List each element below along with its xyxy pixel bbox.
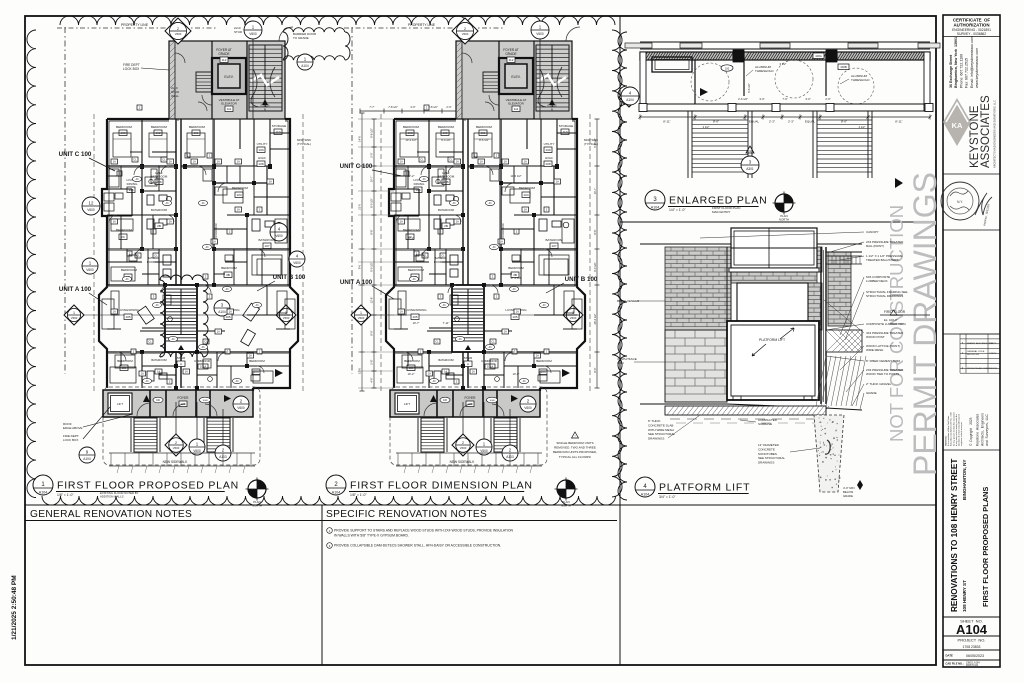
svg-text:FIRST FLOOR PROPOSED PLAN: FIRST FLOOR PROPOSED PLAN — [57, 480, 239, 492]
svg-text:100B: 100B — [840, 65, 847, 69]
svg-text:9'-0: 9'-0 — [358, 264, 362, 269]
svg-text:1A: 1A — [400, 221, 403, 224]
svg-text:BEDROOM: BEDROOM — [438, 125, 454, 129]
svg-text:1A: 1A — [113, 161, 116, 164]
svg-text:TO GRADE: TO GRADE — [293, 36, 309, 40]
svg-text:NEW SIDEWALK: NEW SIDEWALK — [163, 460, 189, 464]
svg-text:A301: A301 — [746, 167, 754, 171]
svg-text:UNIT C 100: UNIT C 100 — [59, 151, 92, 158]
svg-text:7'-8 1/2": 7'-8 1/2" — [388, 105, 398, 109]
svg-text:A104: A104 — [83, 457, 91, 461]
svg-text:A: A — [467, 362, 469, 366]
svg-text:100B: 100B — [489, 400, 495, 402]
svg-text:1A: 1A — [480, 161, 483, 164]
svg-text:10'-1 1/2": 10'-1 1/2" — [405, 138, 416, 142]
svg-text:GRADE: GRADE — [218, 52, 229, 56]
svg-text:8'-0": 8'-0" — [370, 330, 374, 335]
svg-text:LIVING/DINING: LIVING/DINING — [118, 308, 140, 312]
svg-text:CL: CL — [441, 254, 445, 258]
svg-text:BEDROOM: BEDROOM — [151, 125, 167, 129]
svg-text:V600: V600 — [173, 446, 180, 450]
svg-text:ADDITION WALLS: ADDITION WALLS — [100, 495, 124, 499]
svg-text:ROOM: ROOM — [147, 260, 156, 264]
svg-text:1A: 1A — [229, 311, 232, 314]
svg-text:HVAC: HVAC — [545, 156, 553, 160]
svg-text:REVISIONS AND SUBMISSIONS: REVISIONS AND SUBMISSIONS — [967, 367, 998, 370]
svg-text:5'-0": 5'-0" — [370, 152, 374, 157]
svg-text:3/4" = 1'-0": 3/4" = 1'-0" — [659, 495, 676, 499]
svg-text:CONCRETE SLAB: CONCRETE SLAB — [648, 423, 673, 427]
svg-text:06/05/2023: 06/05/2023 — [966, 654, 984, 658]
svg-text:10'-2": 10'-2" — [408, 372, 415, 376]
svg-text:108 HENRY ST: 108 HENRY ST — [962, 580, 967, 612]
svg-text:CMU: CMU — [617, 361, 624, 365]
svg-text:1A: 1A — [169, 221, 172, 224]
svg-text:105: 105 — [125, 315, 130, 319]
svg-text:1A: 1A — [249, 355, 252, 358]
svg-text:108: 108 — [545, 162, 550, 166]
svg-text:1/4" = 1'-0": 1/4" = 1'-0" — [669, 208, 686, 212]
svg-text:Keystone Associates: Keystone Associates — [976, 413, 980, 446]
svg-text:MAIN ENTRY: MAIN ENTRY — [712, 210, 730, 214]
svg-text:2B: 2B — [444, 224, 448, 228]
svg-text:LIVING/DINING: LIVING/DINING — [405, 308, 427, 312]
svg-text:12" DIAMETER: 12" DIAMETER — [758, 443, 780, 447]
svg-text:A104: A104 — [218, 310, 226, 314]
svg-text:and Surveyors, LLC: and Surveyors, LLC — [985, 414, 989, 446]
svg-text:GENERAL CODE: GENERAL CODE — [967, 350, 985, 353]
svg-text:1/8" = 1'-0": 1/8" = 1'-0" — [350, 493, 367, 497]
svg-text:105: 105 — [225, 315, 230, 319]
svg-text:Email: info@keystoneassoc.com: Email: info@keystoneassoc.com — [970, 36, 974, 88]
svg-text:BEDROOM: BEDROOM — [404, 359, 420, 363]
svg-text:10'-7": 10'-7" — [593, 188, 597, 195]
svg-text:ELEV.: ELEV. — [511, 75, 520, 79]
svg-text:V600: V600 — [462, 32, 469, 36]
svg-text:THRESHOLD: THRESHOLD — [755, 69, 774, 73]
svg-text:105: 105 — [412, 315, 417, 319]
svg-text:9'-0 1/2": 9'-0 1/2" — [370, 262, 374, 272]
svg-text:Fax: 607.722.2515: Fax: 607.722.2515 — [965, 58, 969, 88]
svg-text:9'-6 1/2": 9'-6 1/2" — [747, 83, 751, 93]
svg-text:V600: V600 — [275, 234, 283, 238]
svg-text:V600: V600 — [460, 446, 467, 450]
svg-text:It is a violation of New York: It is a violation of New York State — [947, 415, 950, 446]
svg-text:CORRIDOR: CORRIDOR — [501, 223, 505, 238]
svg-text:FIRST FLOOR PROPOSED PLANS: FIRST FLOOR PROPOSED PLANS — [981, 487, 990, 607]
svg-text:REVISIONS: REVISIONS — [967, 354, 979, 356]
svg-text:BEDROOM: BEDROOM — [117, 359, 133, 363]
svg-text:FIRST FLR: FIRST FLR — [966, 664, 978, 667]
svg-text:1A: 1A — [213, 241, 216, 244]
svg-text:103: 103 — [540, 370, 545, 374]
svg-text:FOYER: FOYER — [178, 396, 190, 400]
svg-text:PROVIDE SUPPORT TO STAIRS AND: PROVIDE SUPPORT TO STAIRS AND REPLACE WO… — [334, 529, 514, 533]
svg-text:TREATED BALUSTERS: TREATED BALUSTERS — [866, 258, 898, 262]
svg-text:1A: 1A — [428, 373, 431, 376]
svg-text:UTILITY: UTILITY — [544, 142, 555, 146]
svg-text:PLATFORM LIFT: PLATFORM LIFT — [659, 482, 750, 494]
svg-text:ELEVATOR: ELEVATOR — [508, 102, 524, 106]
svg-text:2: 2 — [177, 27, 179, 31]
svg-text:CANOPY: CANOPY — [866, 230, 879, 234]
svg-text:1A: 1A — [524, 209, 527, 212]
svg-text:V600: V600 — [87, 208, 95, 212]
svg-text:1A: 1A — [169, 161, 172, 164]
svg-text:2'-3": 2'-3" — [788, 120, 794, 124]
svg-text:6 1/2": 6 1/2" — [780, 62, 787, 66]
svg-text:BEDROOM: BEDROOM — [536, 359, 552, 363]
svg-text:14'-6: 14'-6 — [358, 136, 362, 142]
svg-text:for any person to alter this d: for any person to alter this document — [952, 412, 955, 446]
svg-text:1A: 1A — [217, 161, 220, 164]
svg-text:EQUAL: EQUAL — [805, 120, 816, 124]
svg-text:9'-4 1/2": 9'-4 1/2" — [441, 138, 451, 142]
svg-text:B: B — [264, 108, 266, 112]
svg-text:107: 107 — [264, 244, 269, 248]
svg-text:SINGLE BEDROOM UNITS: SINGLE BEDROOM UNITS — [556, 441, 593, 445]
svg-text:BATHROOM: BATHROOM — [438, 358, 454, 362]
svg-text:1A: 1A — [400, 311, 403, 314]
svg-text:V600: V600 — [193, 449, 201, 453]
svg-text:HVAC: HVAC — [258, 156, 266, 160]
svg-text:15'-6: 15'-6 — [358, 368, 362, 374]
svg-text:ASSOCIATES: ASSOCIATES — [980, 95, 992, 168]
svg-text:12/8/23: 12/8/23 — [989, 353, 997, 355]
svg-text:WOOD TIED TO POSTS: WOOD TIED TO POSTS — [866, 372, 899, 376]
svg-text:PROJECT NO.: PROJECT NO. — [958, 638, 986, 643]
svg-text:BEDROOM: BEDROOM — [232, 186, 248, 190]
svg-text:1A: 1A — [217, 331, 220, 334]
svg-text:NORTH: NORTH — [561, 504, 571, 508]
svg-text:AUTHORIZATION: AUTHORIZATION — [953, 23, 989, 28]
svg-text:104: 104 — [236, 193, 241, 197]
svg-text:1A: 1A — [141, 373, 144, 376]
svg-text:ELEVATOR: ELEVATOR — [221, 102, 237, 106]
svg-text:ENLARGED PLAN: ENLARGED PLAN — [669, 195, 768, 207]
svg-text:LIFT: LIFT — [117, 402, 123, 406]
svg-text:100: 100 — [725, 66, 730, 70]
svg-text:WALL: WALL — [171, 94, 179, 98]
svg-text:BEDROOM: BEDROOM — [249, 359, 265, 363]
svg-text:BEDROOM UNITS PROPOSED,: BEDROOM UNITS PROPOSED, — [553, 450, 597, 454]
svg-text:109: 109 — [545, 148, 550, 152]
svg-text:112: 112 — [222, 58, 227, 62]
svg-text:NORTH: NORTH — [779, 218, 789, 222]
svg-text:A: A — [180, 362, 182, 366]
svg-text:3B: 3B — [226, 273, 230, 277]
svg-text:100A: 100A — [815, 54, 822, 58]
svg-text:Education Law Article 145 Sec.: Education Law Article 145 Sec. 7209 — [950, 411, 953, 446]
svg-text:A104: A104 — [626, 98, 634, 102]
svg-text:EL: 100'-0": EL: 100'-0" — [884, 318, 898, 322]
svg-text:NORTH: NORTH — [252, 504, 262, 508]
svg-text:111: 111 — [227, 107, 232, 111]
svg-text:2" THICK GRAVEL: 2" THICK GRAVEL — [866, 382, 892, 386]
svg-text:V600: V600 — [283, 316, 290, 320]
svg-text:5'-6": 5'-6" — [370, 359, 374, 364]
svg-text:DINING: DINING — [414, 182, 425, 186]
svg-text:BEDROOM: BEDROOM — [221, 266, 237, 270]
svg-text:EQUAL: EQUAL — [749, 120, 760, 124]
svg-text:PLATFORM LIFT: PLATFORM LIFT — [759, 338, 785, 342]
svg-text:7'-7": 7'-7" — [369, 105, 374, 109]
svg-text:A104: A104 — [956, 622, 988, 637]
svg-text:1A: 1A — [269, 181, 272, 184]
svg-text:V600: V600 — [71, 316, 78, 320]
svg-text:PROPERTY LINE: PROPERTY LINE — [408, 23, 436, 27]
svg-text:2'-6 1/2": 2'-6 1/2" — [738, 97, 748, 101]
svg-text:DRAWINGS: DRAWINGS — [758, 461, 774, 465]
svg-text:PERMIT DRAWINGS: PERMIT DRAWINGS — [907, 172, 943, 476]
svg-text:CAD FILE NO.:: CAD FILE NO.: — [946, 662, 964, 666]
svg-text:STORAGE: STORAGE — [559, 124, 574, 128]
svg-text:9'-6 1/2": 9'-6 1/2" — [370, 128, 374, 138]
svg-text:2: 2 — [464, 27, 466, 31]
svg-text:WIRE MESH: WIRE MESH — [866, 348, 883, 352]
svg-text:100: 100 — [443, 399, 448, 402]
svg-text:in any way unless acting under: in any way unless acting under the — [955, 413, 958, 446]
svg-text:1A: 1A — [524, 161, 527, 164]
svg-text:V600: V600 — [524, 406, 532, 410]
svg-text:1A: 1A — [400, 161, 403, 164]
svg-text:GRADE: GRADE — [843, 494, 853, 498]
svg-text:(TYPICAL): (TYPICAL) — [297, 142, 311, 146]
svg-text:DINING: DINING — [127, 182, 138, 186]
svg-text:1/08/25: 1/08/25 — [989, 343, 997, 345]
svg-text:Phone: 607.722.1100: Phone: 607.722.1100 — [959, 54, 963, 88]
svg-text:SPECIFIC RENOVATION NOTES: SPECIFIC RENOVATION NOTES — [326, 509, 487, 520]
svg-text:Architects, Engineers: Architects, Engineers — [980, 413, 984, 446]
svg-text:108: 108 — [258, 162, 263, 166]
svg-text:BATHROOM: BATHROOM — [545, 238, 563, 242]
svg-text:BATHROOM: BATHROOM — [438, 208, 455, 212]
svg-text:A104: A104 — [641, 493, 649, 497]
svg-text:10'-2": 10'-2" — [408, 236, 415, 240]
svg-text:STORAGE: STORAGE — [272, 124, 287, 128]
svg-text:112: 112 — [509, 58, 514, 62]
svg-text:1A: 1A — [237, 209, 240, 212]
svg-text:PROPERTY LINE: PROPERTY LINE — [121, 23, 149, 27]
svg-text:BRICK VENEER: BRICK VENEER — [617, 299, 640, 303]
svg-text:www.keystoneassoc.com: www.keystoneassoc.com — [975, 48, 979, 88]
svg-text:1A: 1A — [504, 331, 507, 334]
svg-text:1/21/2025 2:50:48 PM: 1/21/2025 2:50:48 PM — [11, 575, 18, 640]
svg-text:A104: A104 — [301, 64, 309, 68]
svg-text:103: 103 — [253, 370, 258, 374]
svg-text:1A: 1A — [456, 221, 459, 224]
svg-text:COMPOSITE LUMBER TRIM: COMPOSITE LUMBER TRIM — [866, 322, 906, 326]
svg-text:1A: 1A — [500, 241, 503, 244]
svg-text:V600: V600 — [86, 268, 94, 272]
svg-text:SURVEY - 0036862: SURVEY - 0036862 — [957, 32, 986, 36]
svg-text:8'-11": 8'-11" — [895, 120, 902, 124]
svg-text:8'-6": 8'-6" — [370, 229, 374, 234]
svg-text:1A: 1A — [113, 221, 116, 224]
svg-text:LOCK BOX: LOCK BOX — [63, 438, 78, 442]
svg-text:TYPICAL ALL FLOORS!: TYPICAL ALL FLOORS! — [559, 455, 591, 459]
svg-text:BATHROOM: BATHROOM — [151, 358, 167, 362]
svg-text:1708 23833: 1708 23833 — [963, 645, 981, 649]
svg-text:11'-0 1/2": 11'-0 1/2" — [510, 174, 521, 178]
svg-text:BEDROOM: BEDROOM — [403, 228, 419, 232]
svg-text:10'-7": 10'-7" — [413, 321, 420, 325]
svg-text:UNIT B 100: UNIT B 100 — [565, 276, 598, 283]
svg-text:8'-6": 8'-6" — [593, 229, 597, 234]
svg-text:1A: 1A — [472, 371, 475, 374]
svg-text:STAIR: STAIR — [464, 356, 473, 360]
svg-text:N.Y.: N.Y. — [957, 200, 963, 204]
svg-text:ARCHITECTS AND ENGINEERS AND S: ARCHITECTS AND ENGINEERS AND SURVEYORS, … — [993, 100, 997, 168]
svg-text:1A: 1A — [185, 371, 188, 374]
svg-text:UNIT C 100: UNIT C 100 — [340, 163, 373, 170]
svg-text:BEDROOM: BEDROOM — [116, 228, 132, 232]
svg-text:BEDROOM: BEDROOM — [508, 266, 524, 270]
svg-text:36 Exchange Street: 36 Exchange Street — [949, 54, 953, 88]
svg-text:FIRST FLOOR DIMENSION PLAN: FIRST FLOOR DIMENSION PLAN — [350, 480, 533, 492]
svg-text:SUBBASE: SUBBASE — [758, 422, 772, 426]
svg-text:LIFT: LIFT — [404, 402, 410, 406]
svg-text:RAIL (PAINT): RAIL (PAINT) — [866, 244, 884, 248]
svg-text:STUD: STUD — [234, 30, 243, 34]
svg-text:8'-0": 8'-0" — [593, 367, 597, 372]
svg-text:2: 2 — [175, 441, 177, 445]
svg-text:7'-11": 7'-11" — [443, 321, 450, 325]
svg-text:6" THICK: 6" THICK — [648, 419, 661, 423]
svg-text:BATHROOM: BATHROOM — [151, 208, 168, 212]
svg-text:direction of a licensed profes: direction of a licensed professional — [958, 414, 961, 446]
svg-text:IN WALLS WITH 5/8" TYPE-X GYPS: IN WALLS WITH 5/8" TYPE-X GYPSUM BOARD. — [334, 534, 409, 538]
svg-text:CL: CL — [491, 340, 495, 344]
svg-text:CORRIDOR: CORRIDOR — [214, 223, 218, 238]
svg-text:RENOVATIONS TO 108 HENRY STREE: RENOVATIONS TO 108 HENRY STREET — [950, 459, 959, 612]
svg-text:CONCRETE: CONCRETE — [758, 447, 775, 451]
svg-text:6'-0 1/2": 6'-0 1/2" — [370, 198, 374, 208]
svg-text:1A: 1A — [536, 355, 539, 358]
svg-text:3'-0": 3'-0" — [759, 97, 764, 101]
svg-text:engineer or land surveyor.: engineer or land surveyor. — [960, 422, 963, 446]
svg-text:WARNING:: WARNING: — [945, 435, 948, 446]
svg-text:BEDROOM: BEDROOM — [116, 125, 132, 129]
svg-text:FOYER: FOYER — [465, 396, 477, 400]
svg-text:2B: 2B — [157, 224, 161, 228]
svg-text:1A: 1A — [504, 161, 507, 164]
svg-text:111: 111 — [514, 107, 519, 111]
svg-text:REMOVED. TWO AND THREE: REMOVED. TWO AND THREE — [554, 446, 596, 450]
svg-text:1A: 1A — [113, 311, 116, 314]
svg-text:V600: V600 — [293, 261, 301, 265]
svg-text:9'-0 1/2": 9'-0 1/2" — [593, 262, 597, 272]
svg-text:THRESHOLD: THRESHOLD — [851, 78, 870, 82]
svg-text:8'-11": 8'-11" — [663, 120, 670, 124]
svg-text:BEDROOM: BEDROOM — [476, 125, 492, 129]
svg-text:7'-6": 7'-6" — [782, 97, 787, 101]
svg-text:A104: A104 — [651, 206, 659, 210]
svg-text:WITH WIRE MESH: WITH WIRE MESH — [648, 428, 674, 432]
svg-text:ROOM: ROOM — [434, 260, 443, 264]
svg-text:100B: 100B — [202, 400, 208, 402]
svg-text:V600: V600 — [480, 449, 488, 453]
svg-text:DATE: DATE — [946, 654, 954, 658]
svg-text:3'-0": 3'-0" — [410, 105, 415, 109]
svg-text:UTILITY: UTILITY — [257, 142, 268, 146]
svg-text:107: 107 — [551, 244, 556, 248]
svg-text:1A: 1A — [556, 181, 559, 184]
svg-text:UNIT A 100: UNIT A 100 — [59, 286, 92, 293]
svg-text:A104: A104 — [332, 491, 340, 495]
svg-text:9'-6 1/2": 9'-6 1/2" — [593, 138, 597, 148]
svg-text:GRADE: GRADE — [505, 52, 516, 56]
svg-text:1: 1 — [360, 311, 362, 315]
svg-text:EDGE ABOVE: EDGE ABOVE — [63, 426, 83, 430]
svg-text:12: 12 — [89, 201, 94, 206]
svg-text:LOCK BOX: LOCK BOX — [123, 67, 140, 71]
svg-text:6" FIBER CEMENT TRIM: 6" FIBER CEMENT TRIM — [866, 359, 900, 363]
svg-text:SEE STRUCTURAL: SEE STRUCTURAL — [758, 456, 785, 460]
svg-text:2'-6": 2'-6" — [825, 97, 830, 101]
svg-text:V600: V600 — [249, 32, 257, 36]
svg-text:B: B — [551, 108, 553, 112]
svg-text:© Copyright 2023: © Copyright 2023 — [969, 417, 973, 446]
svg-text:DRAWINGS: DRAWINGS — [648, 437, 664, 441]
svg-text:12'-6": 12'-6" — [370, 297, 374, 304]
svg-text:KA: KA — [952, 121, 963, 130]
svg-text:BEDROOM: BEDROOM — [189, 125, 205, 129]
svg-text:BINGHAMTON, NY: BINGHAMTON, NY — [962, 460, 967, 501]
svg-text:BATH: BATH — [435, 256, 442, 260]
svg-text:8'-6 1/2": 8'-6 1/2" — [479, 138, 489, 142]
svg-text:STRUCTURAL DRAWINGS: STRUCTURAL DRAWINGS — [866, 294, 903, 298]
svg-text:3'-0": 3'-0" — [805, 97, 810, 101]
svg-text:CL: CL — [133, 158, 137, 162]
svg-text:1/8" = 1'-0": 1/8" = 1'-0" — [57, 493, 74, 497]
svg-text:109: 109 — [258, 148, 263, 152]
svg-text:104: 104 — [523, 193, 528, 197]
svg-text:BATH: BATH — [148, 256, 155, 260]
svg-text:CL: CL — [162, 158, 166, 162]
svg-text:4'-0": 4'-0" — [370, 377, 374, 382]
svg-text:V600: V600 — [536, 32, 544, 36]
svg-text:10'-7": 10'-7" — [370, 176, 374, 183]
svg-text:WOOD POST: WOOD POST — [866, 335, 885, 339]
svg-text:Binghamton, New York 13901: Binghamton, New York 13901 — [954, 37, 958, 88]
svg-text:V600: V600 — [175, 32, 182, 36]
svg-text:V600: V600 — [358, 316, 365, 320]
svg-text:A104: A104 — [39, 491, 47, 495]
svg-text:GENERAL RENOVATION NOTES: GENERAL RENOVATION NOTES — [30, 509, 192, 520]
svg-text:26'-0 1/2": 26'-0 1/2" — [593, 313, 597, 324]
svg-text:1A: 1A — [456, 161, 459, 164]
svg-text:V600: V600 — [570, 316, 577, 320]
svg-text:2'-3": 2'-3" — [769, 120, 775, 124]
svg-text:100: 100 — [156, 399, 161, 402]
svg-text:CL: CL — [154, 254, 158, 258]
svg-text:CL: CL — [420, 158, 424, 162]
svg-text:2: 2 — [462, 441, 464, 445]
svg-text:105: 105 — [512, 315, 517, 319]
svg-text:1: 1 — [73, 311, 75, 315]
svg-text:1A: 1A — [193, 161, 196, 164]
svg-text:1A: 1A — [516, 311, 519, 314]
svg-text:LUMBER DECK: LUMBER DECK — [866, 279, 888, 283]
svg-text:1A: 1A — [237, 161, 240, 164]
svg-text:GRADE: GRADE — [866, 391, 877, 395]
svg-text:NEW SIDEWALK: NEW SIDEWALK — [450, 460, 476, 464]
svg-text:BEDROOM: BEDROOM — [519, 186, 535, 190]
svg-text:BEDROOM: BEDROOM — [403, 125, 419, 129]
svg-text:CL: CL — [435, 340, 439, 344]
svg-text:SONOTUBES: SONOTUBES — [758, 452, 777, 456]
